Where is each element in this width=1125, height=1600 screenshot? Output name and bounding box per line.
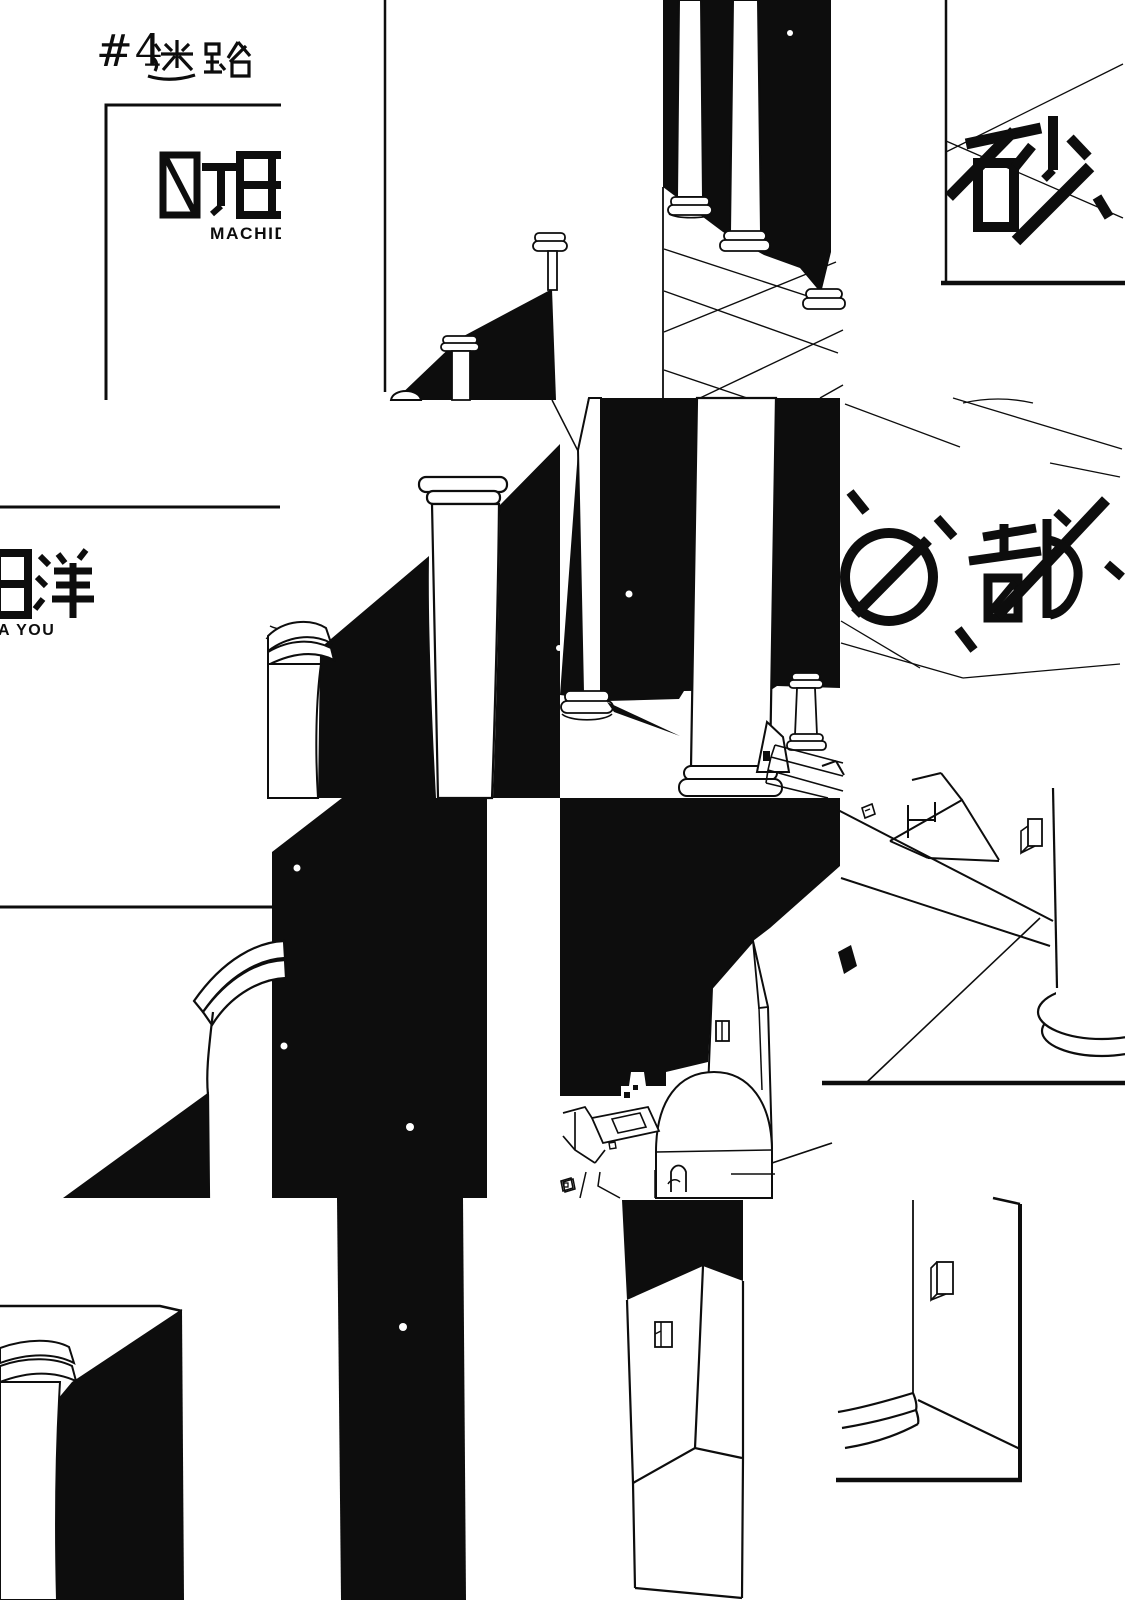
star-dot bbox=[556, 645, 562, 651]
night-block-middle bbox=[272, 798, 487, 1198]
star-dot bbox=[294, 865, 301, 872]
dome bbox=[656, 1072, 772, 1198]
series-logo-suna-panel bbox=[941, 0, 1125, 283]
column-close-left bbox=[0, 798, 487, 1198]
colonnade-middle bbox=[268, 444, 562, 798]
night-strip-middle bbox=[337, 1198, 466, 1600]
star-dot bbox=[787, 30, 793, 36]
series-logo-miyako-panel bbox=[841, 398, 1122, 678]
star-dot bbox=[626, 591, 633, 598]
colonnade-top-middle bbox=[385, 0, 567, 400]
star-dot bbox=[281, 1043, 288, 1050]
night-portico bbox=[663, 0, 845, 398]
courtyard-corner bbox=[836, 1198, 1022, 1480]
column-corner-left bbox=[0, 1306, 184, 1600]
author-romaji-fragment: A YOU bbox=[0, 622, 55, 640]
manga-title-page: #4 MACHIDA A YOU bbox=[0, 0, 1125, 1600]
night-plaza bbox=[552, 398, 843, 798]
rooftop-street bbox=[822, 761, 1125, 1083]
star-dot bbox=[399, 1323, 407, 1331]
tower-alley bbox=[563, 1170, 775, 1598]
author-romaji-clip: MACHIDA bbox=[0, 0, 281, 400]
author-romaji: MACHIDA bbox=[210, 224, 281, 244]
author-romaji-fragment-clip: A YOU bbox=[0, 398, 281, 798]
night-city bbox=[560, 798, 840, 1198]
star-dot bbox=[406, 1123, 414, 1131]
